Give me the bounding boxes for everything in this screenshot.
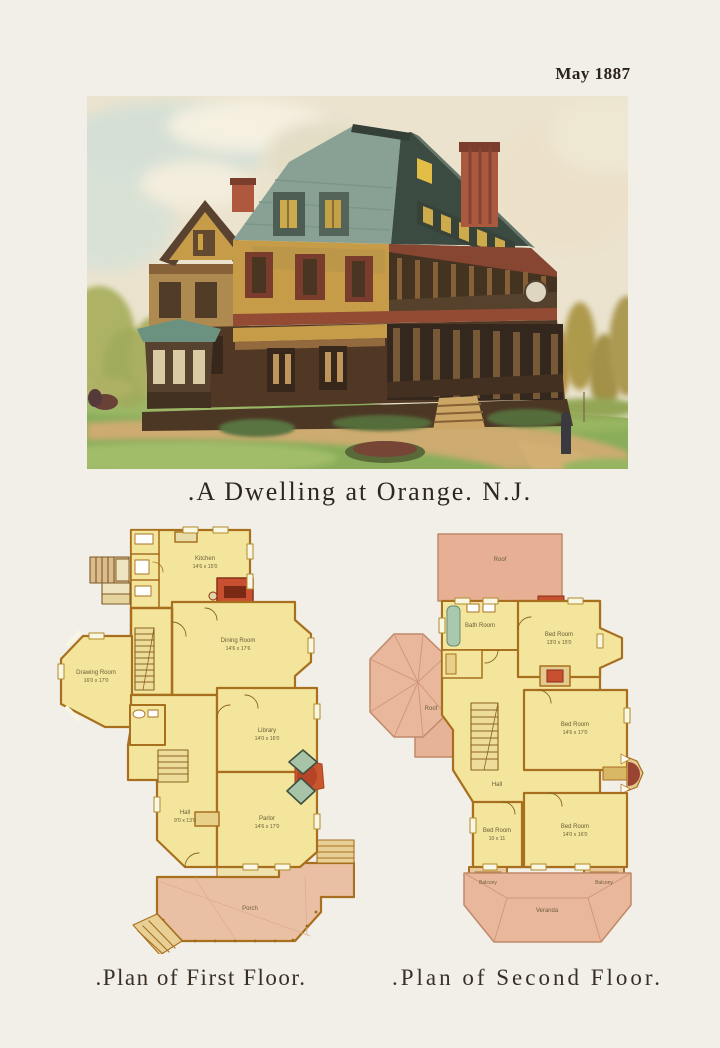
svg-text:Parlor: Parlor (259, 816, 275, 822)
svg-text:Roof: Roof (425, 706, 438, 712)
svg-text:Bed Room: Bed Room (561, 824, 589, 830)
svg-text:Porch: Porch (242, 906, 258, 912)
svg-text:Balcony: Balcony (479, 880, 497, 886)
svg-text:Bed Room: Bed Room (483, 828, 511, 834)
svg-text:Library: Library (258, 728, 276, 734)
svg-text:Kitchen: Kitchen (195, 556, 215, 562)
svg-text:Bed Room: Bed Room (545, 632, 573, 638)
svg-text:10 x 11: 10 x 11 (489, 836, 506, 842)
svg-text:14'6 x 17'0: 14'6 x 17'0 (255, 824, 280, 830)
svg-text:Bed Room: Bed Room (561, 722, 589, 728)
svg-text:Bath Room: Bath Room (465, 623, 495, 629)
svg-text:Hall: Hall (492, 782, 502, 788)
svg-text:13'0 x 15'0: 13'0 x 15'0 (547, 640, 572, 646)
svg-text:14'6 x 15'0: 14'6 x 15'0 (193, 564, 218, 570)
svg-text:Balcony: Balcony (595, 880, 613, 886)
svg-text:14'0 x 16'0: 14'0 x 16'0 (563, 832, 588, 838)
svg-text:Hall: Hall (180, 810, 190, 816)
svg-text:14'6 x 17'6: 14'6 x 17'6 (226, 646, 251, 652)
svg-text:Roof: Roof (494, 557, 507, 563)
svg-text:9'0 x 13'0: 9'0 x 13'0 (174, 818, 196, 824)
svg-text:14'0 x 16'0: 14'0 x 16'0 (255, 736, 280, 742)
svg-text:Drawing Room: Drawing Room (76, 670, 116, 676)
svg-text:Dining Room: Dining Room (221, 638, 256, 644)
svg-text:16'0 x 17'0: 16'0 x 17'0 (84, 678, 109, 684)
svg-text:14'6 x 17'0: 14'6 x 17'0 (563, 730, 588, 736)
svg-text:Veranda: Veranda (536, 908, 559, 914)
